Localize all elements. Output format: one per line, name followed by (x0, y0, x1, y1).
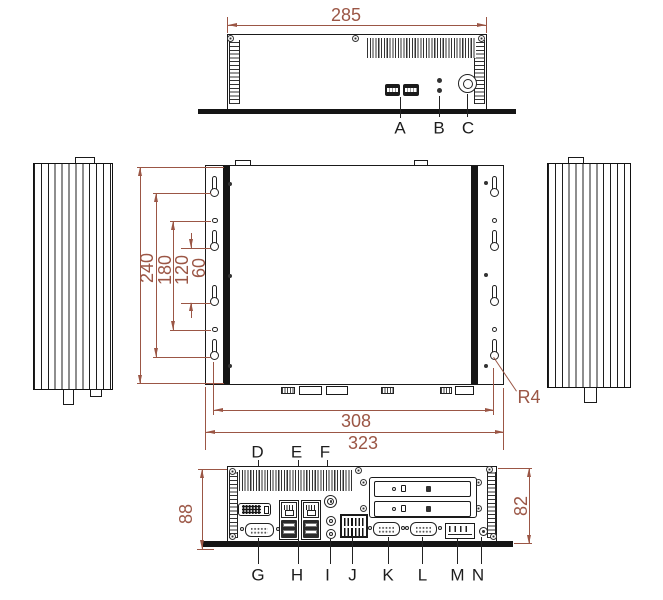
usb-stack (281, 520, 297, 538)
terminal-pins (344, 518, 365, 526)
keyhole-bulb (210, 297, 219, 306)
dim-line-285 (228, 25, 486, 26)
keyhole-slot (490, 176, 499, 198)
ext-line (170, 330, 211, 331)
usb-slot (305, 530, 317, 534)
arrowhead (138, 167, 142, 176)
usb-port (385, 84, 400, 96)
dim-240: 240 (138, 253, 156, 283)
screw-icon (484, 364, 488, 368)
arrowhead (200, 469, 204, 478)
lan-port (281, 502, 297, 518)
db9-screw (405, 526, 409, 530)
usb-port (403, 84, 419, 96)
edge-connector (381, 387, 394, 394)
serial-port-g (245, 523, 274, 537)
ground-screw-center (482, 530, 485, 533)
usb-slot-bar (387, 88, 398, 92)
screw-icon (486, 466, 493, 473)
callout-l: L (418, 567, 427, 584)
ext-line (153, 193, 211, 194)
audio-jack-hole (329, 532, 333, 536)
dvi-analog-block (264, 506, 269, 514)
leader-c (467, 94, 468, 117)
chassis-outline (205, 165, 504, 385)
usb-slot (305, 523, 317, 527)
usb-stack (303, 520, 319, 538)
screw-icon (352, 35, 359, 42)
ext-line (153, 357, 211, 358)
leader-n (481, 537, 482, 564)
mount-hole (212, 218, 218, 224)
led-indicator (437, 88, 442, 93)
arrowhead (200, 540, 204, 549)
arrowhead (171, 321, 175, 330)
keyhole-bulb (210, 188, 219, 197)
screw-icon (355, 467, 362, 474)
rj45-pins (284, 505, 294, 510)
keyhole-slot (210, 230, 219, 252)
ext-line (181, 303, 211, 304)
ext-line (137, 383, 224, 384)
arrowhead (154, 348, 158, 357)
right-fin-edge (487, 472, 496, 538)
heatsink-foot (584, 387, 597, 403)
rj45-pins (306, 505, 316, 510)
edge-connector (326, 386, 348, 395)
dim-88: 88 (177, 504, 195, 524)
callout-h: H (291, 567, 303, 584)
bracket-mark (426, 506, 431, 512)
arrowhead (527, 468, 531, 477)
rj45-body (307, 510, 316, 516)
db9-screw (240, 527, 244, 531)
ext-line (181, 248, 211, 249)
leader-l (422, 537, 423, 564)
screw-icon (484, 181, 488, 185)
bracket-hole (392, 507, 396, 511)
screw-icon (227, 35, 234, 42)
keyhole-slot (210, 176, 219, 198)
callout-d: D (251, 443, 263, 460)
keyhole-slot (210, 285, 219, 307)
arrowhead (527, 535, 531, 544)
arrowhead (189, 302, 193, 311)
edge-connector (440, 387, 452, 394)
edge-connector (281, 387, 295, 394)
led-indicator (437, 78, 442, 83)
db9-screw (438, 526, 442, 530)
leader-h (298, 540, 299, 564)
bracket-hole (392, 487, 396, 491)
keyhole-bulb (490, 297, 499, 306)
ext-line (205, 387, 206, 450)
audio-jack-hole (329, 519, 333, 523)
callout-f: F (320, 443, 330, 460)
keyhole-slot (490, 230, 499, 252)
usb-slot (283, 530, 295, 534)
keyhole-slot (210, 339, 219, 361)
callout-b: B (433, 120, 444, 137)
screw-icon (360, 505, 367, 512)
screw-icon (229, 468, 236, 475)
left-fin-edge (229, 40, 240, 104)
leader-b (439, 96, 440, 117)
arrowhead (154, 193, 158, 202)
leader-m (457, 539, 458, 564)
base-bar (198, 109, 516, 114)
antenna-pin (330, 500, 333, 503)
bracket-mark (401, 485, 406, 492)
keyhole-bulb (210, 351, 219, 360)
dim-323: 323 (348, 434, 378, 452)
rj45-body (285, 510, 294, 516)
serial-port-l (410, 522, 437, 536)
leader-a (400, 97, 401, 118)
bracket-mark (426, 486, 431, 492)
keyhole-slot (490, 285, 499, 307)
base-bar (203, 541, 513, 547)
arrowhead (171, 221, 175, 230)
keyhole-bulb (490, 242, 499, 251)
arrowhead (477, 23, 486, 27)
callout-a: A (394, 120, 405, 137)
ext-line (137, 167, 224, 168)
callout-c: C (462, 120, 474, 137)
keyhole-bulb (210, 242, 219, 251)
leader-i (330, 539, 331, 564)
heatsink-foot (90, 389, 102, 397)
callout-i: I (325, 567, 330, 584)
vent-slots (239, 470, 352, 491)
edge-connector (455, 386, 474, 395)
serial-port-k (373, 522, 400, 536)
power-button-inner (463, 79, 473, 89)
arrowhead (189, 239, 193, 248)
left-heatsink (33, 163, 113, 390)
vent-slots (367, 38, 476, 58)
arrowhead (214, 408, 223, 412)
arrowhead (138, 375, 142, 384)
screw-icon (228, 364, 232, 368)
callout-k: K (382, 567, 393, 584)
screw-icon (360, 479, 367, 486)
screw-icon (490, 533, 497, 540)
dim-82: 82 (512, 496, 530, 516)
terminal-pins (344, 528, 365, 536)
expansion-slot-bracket (374, 481, 471, 497)
usb-slot-bar (405, 88, 417, 92)
screw-icon (228, 182, 232, 186)
db9-screw (368, 526, 372, 530)
arrowhead (206, 430, 215, 434)
heatsink-foot (63, 389, 74, 405)
ext-line (503, 388, 504, 450)
lan-port (303, 502, 319, 518)
dim-r4: R4 (517, 388, 540, 406)
callout-e: E (291, 443, 302, 460)
dim-line-88 (202, 469, 203, 549)
right-heatsink (547, 163, 631, 388)
ext-line (170, 221, 211, 222)
leader-j (352, 538, 353, 564)
arrowhead (228, 23, 237, 27)
expansion-slot-bracket (374, 501, 471, 517)
edge-connector (299, 386, 322, 395)
callout-j: J (348, 567, 357, 584)
leader-g (258, 538, 259, 564)
ext-line (486, 17, 487, 33)
callout-m: M (450, 567, 464, 584)
power-terminal-line (448, 534, 472, 535)
right-edge-bar (471, 166, 478, 384)
arrowhead (485, 408, 494, 412)
usb-slot (283, 523, 295, 527)
screw-icon (229, 533, 236, 540)
leader-k (388, 537, 389, 564)
mount-hole (212, 327, 218, 333)
screw-icon (478, 35, 485, 42)
callout-n: N (472, 567, 484, 584)
technical-drawing: 285 A B C (0, 0, 663, 600)
keyhole-bulb (490, 188, 499, 197)
screw-icon (228, 274, 232, 278)
power-pins (449, 526, 471, 532)
bracket-mark (401, 505, 406, 512)
left-fin-edge (229, 472, 238, 538)
dim-285: 285 (331, 6, 361, 24)
arrowhead (495, 430, 504, 434)
callout-g: G (251, 567, 264, 584)
dvi-pin-block (242, 505, 261, 514)
dim-308: 308 (341, 412, 371, 430)
screw-icon (484, 273, 488, 277)
dim-60: 60 (190, 258, 208, 278)
